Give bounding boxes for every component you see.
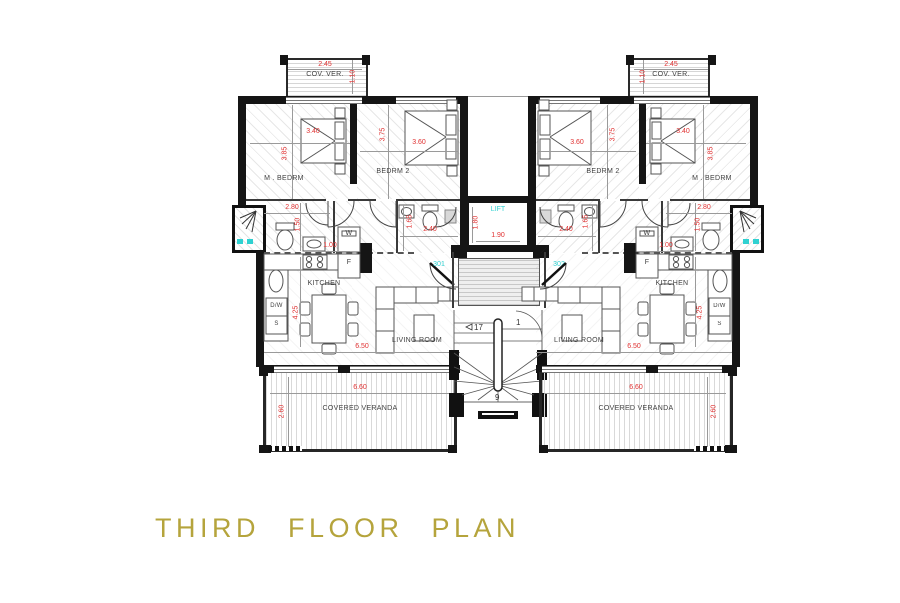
room-label-living: LIVING ROOM xyxy=(539,336,619,345)
dim-label: 1.00 xyxy=(646,241,686,250)
room-label-master-bedroom: M . BEDRM xyxy=(244,174,324,183)
dim-label: 3.85 xyxy=(281,139,290,169)
dim-label: 3.40 xyxy=(273,127,353,136)
dim-label: 1.10 xyxy=(349,62,358,92)
master-bed-icon xyxy=(650,108,695,174)
dim-line xyxy=(403,205,404,251)
dim-line xyxy=(703,105,704,199)
shower-head-icon xyxy=(240,211,256,232)
dim-label: 3.40 xyxy=(643,127,723,136)
dim-label: 3.75 xyxy=(609,120,618,150)
dim-line xyxy=(264,352,460,353)
dim-label: 4.25 xyxy=(696,298,705,328)
dim-line xyxy=(536,352,732,353)
room-label-kitchen: KITCHEN xyxy=(632,279,712,288)
washer-label: W xyxy=(636,229,658,238)
room-label-bedroom2: BEDRM 2 xyxy=(353,167,433,176)
drain-marker xyxy=(753,239,759,244)
dim-line xyxy=(544,393,726,394)
cooktop-icon xyxy=(669,255,693,269)
dim-line xyxy=(592,205,593,251)
dim-label: 3.60 xyxy=(394,138,444,147)
wc-icon xyxy=(276,223,294,250)
master-bed-icon xyxy=(301,108,346,174)
dim-label: 2.40 xyxy=(410,225,450,234)
dim-label: 6.50 xyxy=(614,342,654,351)
dim-label: 1.10 xyxy=(639,62,648,92)
dim-label: 4.25 xyxy=(292,298,301,328)
stair-direction-marker xyxy=(466,324,472,330)
dim-label: 2.80 xyxy=(262,203,322,212)
room-label-master-bedroom: M . BEDRM xyxy=(672,174,752,183)
room-label-bedroom2: BEDRM 2 xyxy=(563,167,643,176)
dim-line xyxy=(292,105,293,199)
sink-label: S xyxy=(708,320,731,329)
dim-line xyxy=(646,251,678,252)
unit-drawing xyxy=(498,55,766,460)
dim-label: 3.75 xyxy=(379,120,388,150)
dishwasher-label: D/W xyxy=(265,302,288,311)
dim-label: 2.60 xyxy=(278,397,287,427)
dim-line xyxy=(288,377,289,447)
shower-head-icon xyxy=(740,211,756,232)
dim-label: 2.60 xyxy=(710,397,719,427)
room-label-veranda: COVERED VERANDA xyxy=(576,404,696,413)
wall xyxy=(452,252,454,308)
dim-label: 2.40 xyxy=(546,225,586,234)
dim-label: 3.60 xyxy=(552,138,602,147)
fridge-label: F xyxy=(338,258,360,267)
drain-marker xyxy=(237,239,243,244)
dim-label: 1.50 xyxy=(694,210,703,240)
apartment-number-left: 301 xyxy=(426,260,452,269)
room-label-kitchen: KITCHEN xyxy=(284,279,364,288)
dim-line xyxy=(538,151,636,152)
washer-label: W xyxy=(338,229,360,238)
stair-count-top: 17 xyxy=(474,323,483,332)
dim-line xyxy=(707,377,708,447)
dim-label: 6.60 xyxy=(340,383,380,392)
wc-icon xyxy=(702,223,720,250)
stair-wall xyxy=(449,393,464,417)
dim-line xyxy=(270,393,452,394)
dim-line xyxy=(646,143,746,144)
dim-label: 6.60 xyxy=(616,383,656,392)
cooktop-icon xyxy=(303,255,327,269)
unit-302: 2.45 COV. VER. 1.10 3.40 3.85 M . BEDRM … xyxy=(498,55,766,460)
dim-line xyxy=(318,251,350,252)
sheet-title: THIRD FLOOR PLAN xyxy=(155,513,520,544)
drain-marker xyxy=(247,239,253,244)
dim-label: 3.85 xyxy=(707,139,716,169)
room-label-living: LIVING ROOM xyxy=(377,336,457,345)
dim-label: 2.80 xyxy=(674,203,734,212)
dim-line xyxy=(250,143,350,144)
drain-marker xyxy=(743,239,749,244)
dim-line xyxy=(360,151,458,152)
dim-line xyxy=(388,105,389,199)
floor-plan-sheet: 2.45 COV. VER. 1.10 3.40 3.85 M . BEDRM … xyxy=(0,0,900,603)
dishwasher-label: D/W xyxy=(708,302,731,311)
dim-label: 1.50 xyxy=(294,210,303,240)
dim-label: 1.00 xyxy=(310,241,350,250)
fridge-label: F xyxy=(636,258,658,267)
sink-label: S xyxy=(265,320,288,329)
stair-wall xyxy=(449,350,459,380)
dim-label: 6.50 xyxy=(342,342,382,351)
floor-plan: 2.45 COV. VER. 1.10 3.40 3.85 M . BEDRM … xyxy=(230,55,770,467)
room-label-veranda: COVERED VERANDA xyxy=(300,404,420,413)
